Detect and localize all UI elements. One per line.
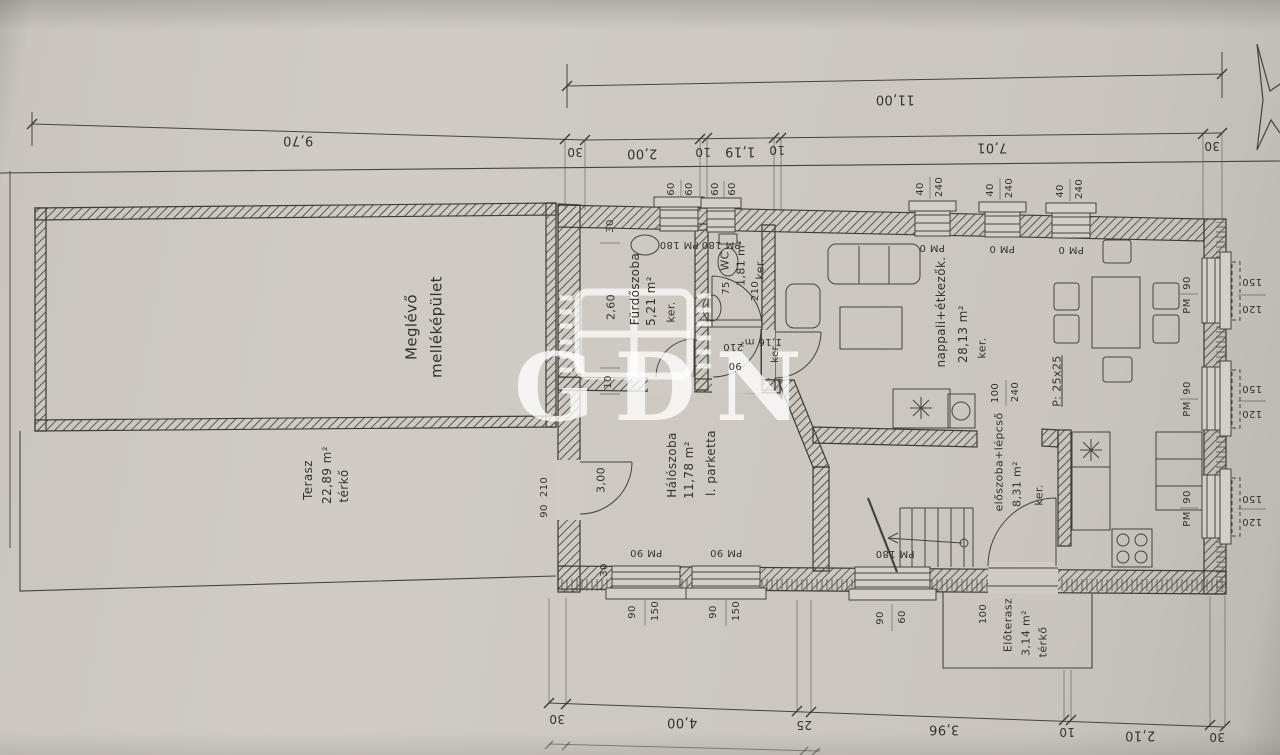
dimension-label: 7,01 — [977, 141, 1008, 154]
dimension-label: 11,00 — [875, 93, 914, 106]
window-dimension-label: 120 — [1242, 516, 1262, 526]
right-wall-windows — [1202, 252, 1240, 544]
wall-dimension-label: 210 — [540, 477, 550, 497]
stairs — [868, 498, 973, 572]
scanned-floorplan-page: GDN 11,009,70302,00101,19107,0130304,002… — [0, 0, 1280, 755]
living-hall-wall — [813, 427, 977, 447]
dimension-label: 3,96 — [929, 723, 960, 736]
room-label: ker. — [1034, 484, 1045, 505]
wall-dimension-label: 90 — [728, 360, 742, 370]
room-label: Meglévő — [405, 294, 420, 360]
room-label: P: 25x25 — [1052, 355, 1063, 407]
window-dimension-label: 60 — [728, 182, 738, 196]
dimension-label: 4,00 — [667, 716, 698, 729]
room-label: 3,14 m² — [1021, 610, 1032, 656]
room-label: melléképület — [430, 276, 445, 378]
room-label: 28,13 m² — [957, 305, 969, 363]
stair-handrail — [868, 498, 897, 572]
room-label: térkő — [1038, 627, 1049, 658]
wall-dimension-label: 10 — [604, 375, 614, 389]
kitchen-wall — [1058, 430, 1071, 546]
window-dimension-label: 90 — [628, 605, 638, 619]
window-dimension-label: 40 — [1056, 184, 1066, 198]
wall-dimension-label: 210 — [751, 281, 761, 301]
window-dimension-label: PM — [1183, 401, 1193, 416]
wall-dimension-label: 3,00 — [596, 467, 607, 493]
window-dimension-label: 150 — [732, 601, 742, 621]
room-label: előszoba+lépcső — [994, 412, 1005, 511]
stove — [1112, 529, 1152, 567]
wall-dimension-label: 100 — [991, 383, 1001, 403]
wall-dimension-label: 75 — [722, 281, 732, 295]
living-top-windows — [909, 201, 1096, 238]
room-label: Előterasz — [1003, 598, 1014, 652]
kitchen-cabinet — [1156, 432, 1202, 510]
room-label: 5,21 m² — [645, 276, 657, 326]
room-label: ker. — [755, 258, 766, 279]
window-dimension-label: 90 — [1183, 490, 1193, 504]
stair-window — [849, 567, 936, 600]
window-dimension-label: PM 180 — [659, 239, 698, 249]
wall-dimension-label: 240 — [1011, 382, 1021, 402]
dimension-label: 2,10 — [1125, 729, 1156, 742]
dimension-label: 30 — [567, 146, 583, 158]
window-dimension-label: 60 — [667, 182, 677, 196]
window-dimension-label: 60 — [711, 182, 721, 196]
window-dimension-label: PM 0 — [989, 243, 1015, 253]
window-dimension-label: PM 180 — [875, 548, 914, 558]
window-dimension-label: 60 — [685, 182, 695, 196]
window-dimension-label: 240 — [935, 177, 945, 197]
sofa — [828, 244, 920, 284]
island-sink — [893, 389, 975, 428]
wall-dimension-label: 30 — [606, 219, 616, 233]
window-dimension-label: 90 — [709, 605, 719, 619]
window-dimension-label: 90 — [1183, 276, 1193, 290]
room-label: térkő — [338, 469, 350, 502]
room-label: 8,31 m² — [1012, 461, 1023, 507]
house-top-wall — [558, 205, 1204, 241]
dimension-label: 2,00 — [627, 147, 658, 160]
window-dimension-label: PM 0 — [1058, 244, 1084, 254]
dimension-label: 30 — [549, 713, 565, 725]
north-star-icon — [1257, 44, 1280, 150]
dimension-label: 10 — [695, 146, 711, 158]
dimension-label: 30 — [1204, 140, 1220, 152]
room-label: ker. — [977, 337, 988, 358]
dimension-label: 10 — [769, 144, 785, 156]
outbuilding-top-wall — [35, 203, 556, 220]
window-dimension-label: 40 — [986, 183, 996, 197]
wall-dimension-label: 2,60 — [606, 294, 617, 320]
wall-dimension-label: 90 — [540, 504, 550, 518]
armchair — [786, 284, 820, 328]
room-label: WC — [720, 251, 731, 270]
window-dimension-label: PM — [1183, 298, 1193, 313]
hall-left-wall — [813, 467, 829, 571]
watermark-text: GDN — [514, 336, 794, 446]
room-label: ker. — [771, 343, 781, 363]
bathroom-top-windows — [654, 197, 741, 232]
room-label: 11,78 m² — [683, 441, 695, 499]
window-dimension-label: PM 90 — [630, 547, 663, 557]
window-dimension-label: 90 — [876, 611, 886, 625]
dimension-label: 9,70 — [283, 134, 314, 147]
window-dimension-label: 240 — [1005, 178, 1015, 198]
dimension-label: 1,19 — [725, 145, 756, 158]
window-dimension-label: 240 — [1075, 179, 1085, 199]
window-dimension-label: 150 — [1242, 383, 1262, 393]
dimension-label: 10 — [1059, 726, 1075, 738]
kitchen-counter — [1072, 432, 1110, 530]
dimension-label: 25 — [796, 719, 812, 731]
window-dimension-label: 60 — [898, 610, 908, 624]
window-dimension-label: 40 — [916, 182, 926, 196]
room-label: l. parketta — [705, 430, 717, 496]
room-label: Terasz — [302, 460, 314, 500]
coffee-table — [840, 307, 902, 349]
window-dimension-label: PM 90 — [710, 547, 743, 557]
room-label: nappali+étkezők. — [935, 256, 947, 367]
window-dimension-label: 120 — [1242, 303, 1262, 313]
dining-chairs — [1054, 240, 1179, 382]
outbuilding-left-wall — [35, 208, 46, 431]
wall-dimension-label: 100 — [979, 604, 989, 624]
wall-dimension-label: 30 — [600, 563, 610, 577]
dimension-label: 30 — [1209, 731, 1225, 743]
outbuilding-bottom-wall — [35, 416, 556, 431]
dining-table — [1092, 277, 1140, 348]
room-label: 22,89 m² — [321, 446, 333, 504]
window-dimension-label: 150 — [651, 601, 661, 621]
room-label: Fürdőszoba — [629, 253, 641, 325]
window-dimension-label: 90 — [1183, 381, 1193, 395]
window-dimension-label: 150 — [1242, 276, 1262, 286]
window-dimension-label: 150 — [1242, 493, 1262, 503]
wall-corner — [1042, 429, 1058, 447]
room-label: 1,81 m² — [736, 240, 747, 286]
room-label: ker. — [666, 301, 677, 322]
window-dimension-label: 120 — [1242, 408, 1262, 418]
window-dimension-label: PM 0 — [919, 242, 945, 252]
window-dimension-label: PM — [1183, 511, 1193, 526]
room-label: Hálószoba — [666, 432, 678, 498]
